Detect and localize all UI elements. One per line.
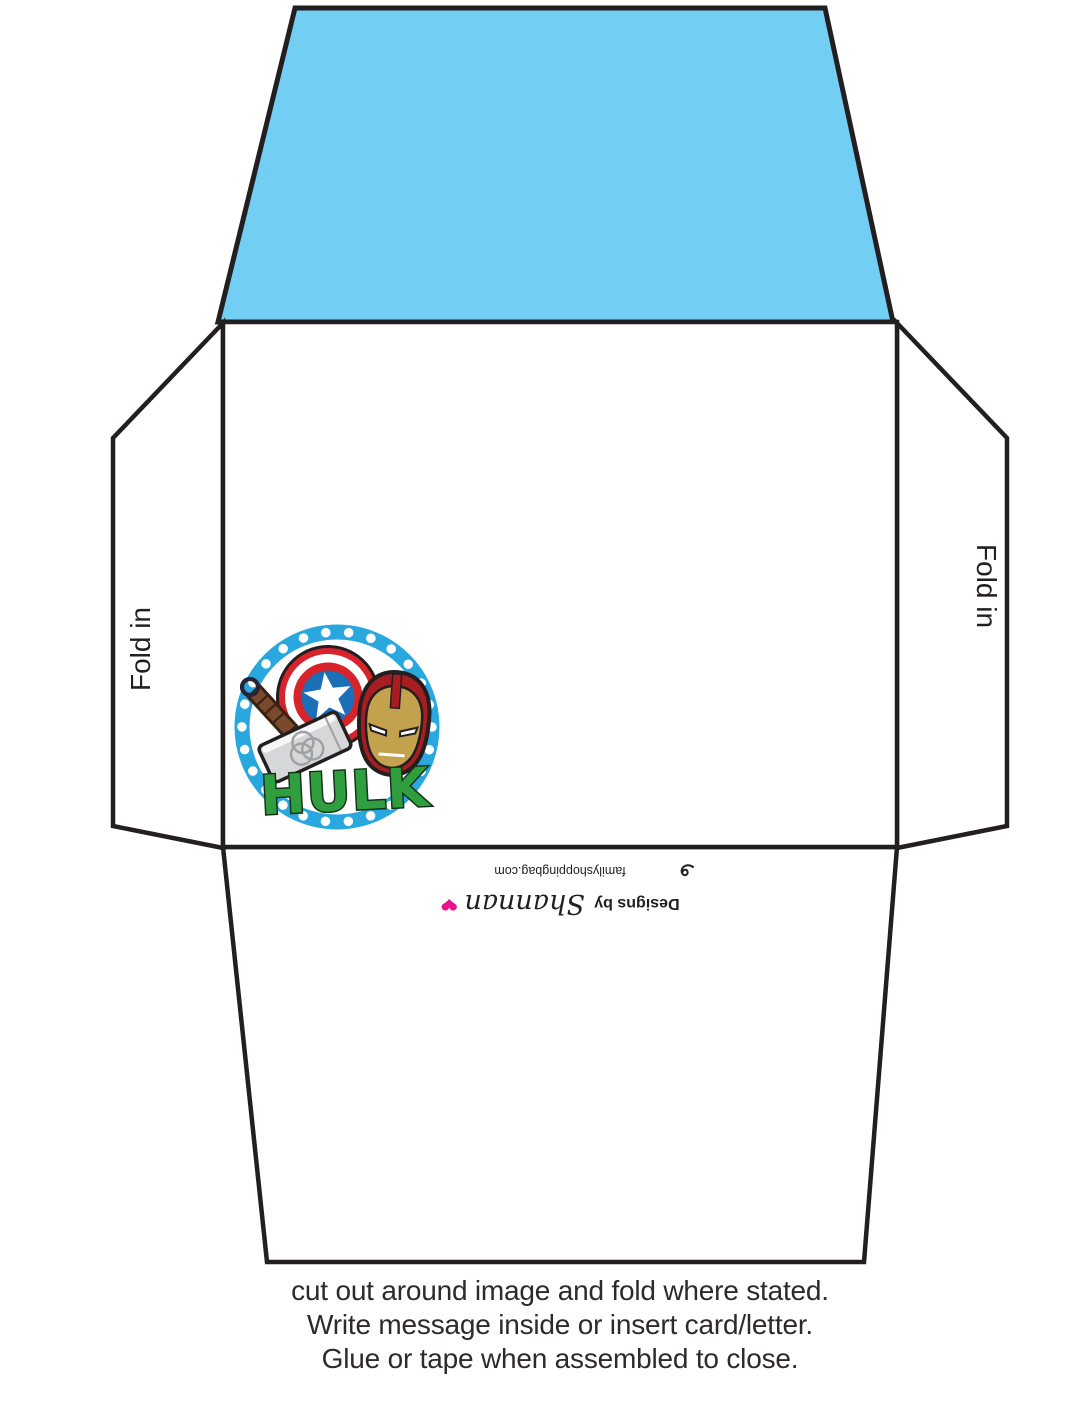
instruction-line-3: Glue or tape when assembled to close. bbox=[160, 1342, 960, 1376]
envelope-cut-lines bbox=[0, 0, 1088, 1408]
credit-prefix: Designs by bbox=[594, 895, 679, 912]
left-flap bbox=[113, 323, 223, 848]
iron-man-mouth-slit bbox=[379, 754, 405, 756]
credit-line: Designs by Shannan ❤ bbox=[430, 880, 690, 926]
website-url: familyshoppingbag.com bbox=[430, 862, 690, 880]
fold-in-label-right: Fold in bbox=[970, 526, 1002, 646]
assembly-instructions: cut out around image and fold where stat… bbox=[160, 1274, 960, 1376]
instruction-line-2: Write message inside or insert card/lett… bbox=[160, 1308, 960, 1342]
hulk-text: HULK bbox=[259, 756, 433, 828]
heart-icon: ❤ bbox=[440, 892, 458, 915]
envelope-template-page: HULK Fold in Fold in Designs by Shannan … bbox=[0, 0, 1088, 1408]
instruction-line-1: cut out around image and fold where stat… bbox=[160, 1274, 960, 1308]
fold-in-label-left: Fold in bbox=[125, 589, 157, 709]
credit-name: Shannan bbox=[465, 888, 585, 919]
helmet-forehead-stripe bbox=[390, 674, 401, 709]
top-flap bbox=[218, 8, 893, 322]
designer-credit: Designs by Shannan ❤ familyshoppingbag.c… bbox=[430, 852, 690, 926]
avengers-badge: HULK bbox=[234, 624, 440, 830]
